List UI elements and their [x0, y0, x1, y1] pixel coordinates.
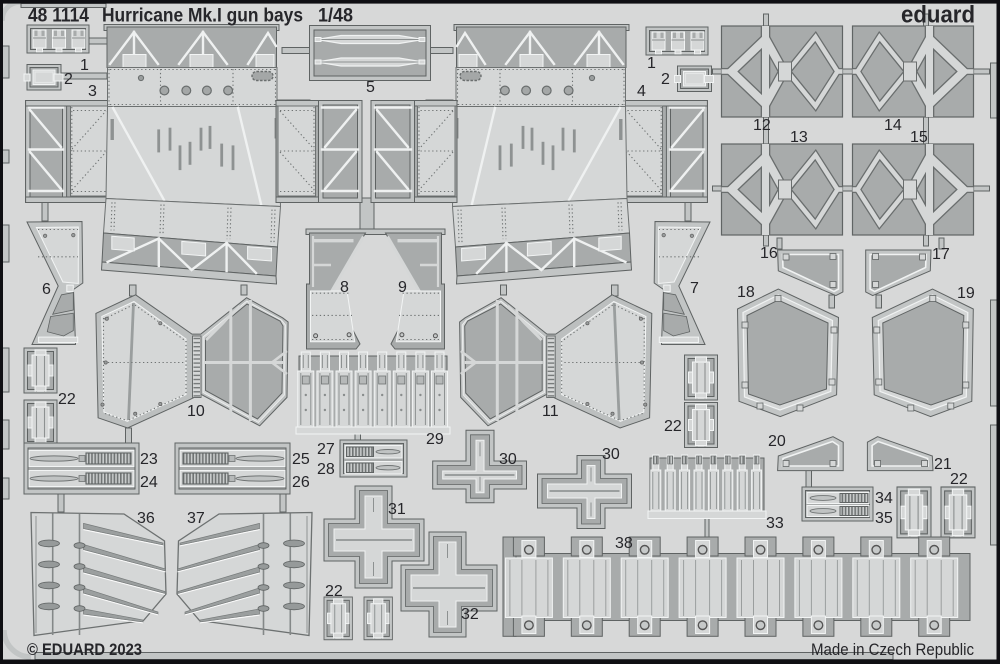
svg-text:35: 35	[875, 510, 893, 527]
svg-text:4: 4	[637, 83, 646, 100]
svg-text:19: 19	[957, 285, 975, 302]
svg-text:22: 22	[664, 418, 682, 435]
svg-text:11: 11	[542, 403, 559, 420]
svg-text:25: 25	[292, 451, 310, 468]
svg-text:9: 9	[398, 279, 407, 296]
svg-text:7: 7	[690, 280, 699, 297]
svg-text:Hurricane Mk.I gun bays: Hurricane Mk.I gun bays	[102, 6, 303, 27]
svg-text:16: 16	[760, 245, 778, 262]
svg-text:20: 20	[768, 433, 786, 450]
svg-text:1: 1	[647, 55, 656, 72]
svg-text:27: 27	[317, 441, 335, 458]
svg-text:36: 36	[137, 510, 155, 527]
svg-text:29: 29	[426, 431, 444, 448]
svg-text:13: 13	[790, 129, 808, 146]
svg-text:2: 2	[64, 71, 73, 88]
svg-text:33: 33	[766, 515, 784, 532]
svg-text:32: 32	[461, 606, 479, 623]
svg-text:2: 2	[661, 71, 670, 88]
svg-text:17: 17	[932, 246, 950, 263]
svg-text:30: 30	[499, 451, 517, 468]
svg-text:37: 37	[187, 510, 205, 527]
svg-text:30: 30	[602, 446, 620, 463]
svg-text:22: 22	[58, 391, 76, 408]
svg-text:14: 14	[884, 117, 902, 134]
svg-text:6: 6	[42, 281, 51, 298]
svg-text:1/48: 1/48	[318, 6, 353, 27]
svg-text:26: 26	[292, 474, 310, 491]
svg-text:24: 24	[140, 474, 158, 491]
svg-text:8: 8	[340, 279, 349, 296]
svg-text:31: 31	[388, 501, 406, 518]
svg-text:18: 18	[737, 284, 755, 301]
svg-text:34: 34	[875, 490, 893, 507]
svg-text:23: 23	[140, 451, 158, 468]
svg-text:10: 10	[187, 403, 205, 420]
svg-text:28: 28	[317, 461, 335, 478]
svg-text:© EDUARD 2023: © EDUARD 2023	[27, 640, 142, 659]
svg-text:15: 15	[910, 129, 928, 146]
svg-text:22: 22	[950, 471, 968, 488]
svg-text:12: 12	[753, 117, 771, 134]
svg-text:eduard: eduard	[901, 2, 975, 29]
svg-text:38: 38	[615, 535, 633, 552]
svg-text:1: 1	[80, 57, 89, 74]
svg-text:Made in Czech Republic: Made in Czech Republic	[811, 640, 974, 659]
svg-text:48 1114: 48 1114	[28, 6, 89, 27]
svg-text:22: 22	[325, 583, 343, 600]
svg-text:5: 5	[366, 79, 375, 96]
svg-text:3: 3	[88, 83, 97, 100]
